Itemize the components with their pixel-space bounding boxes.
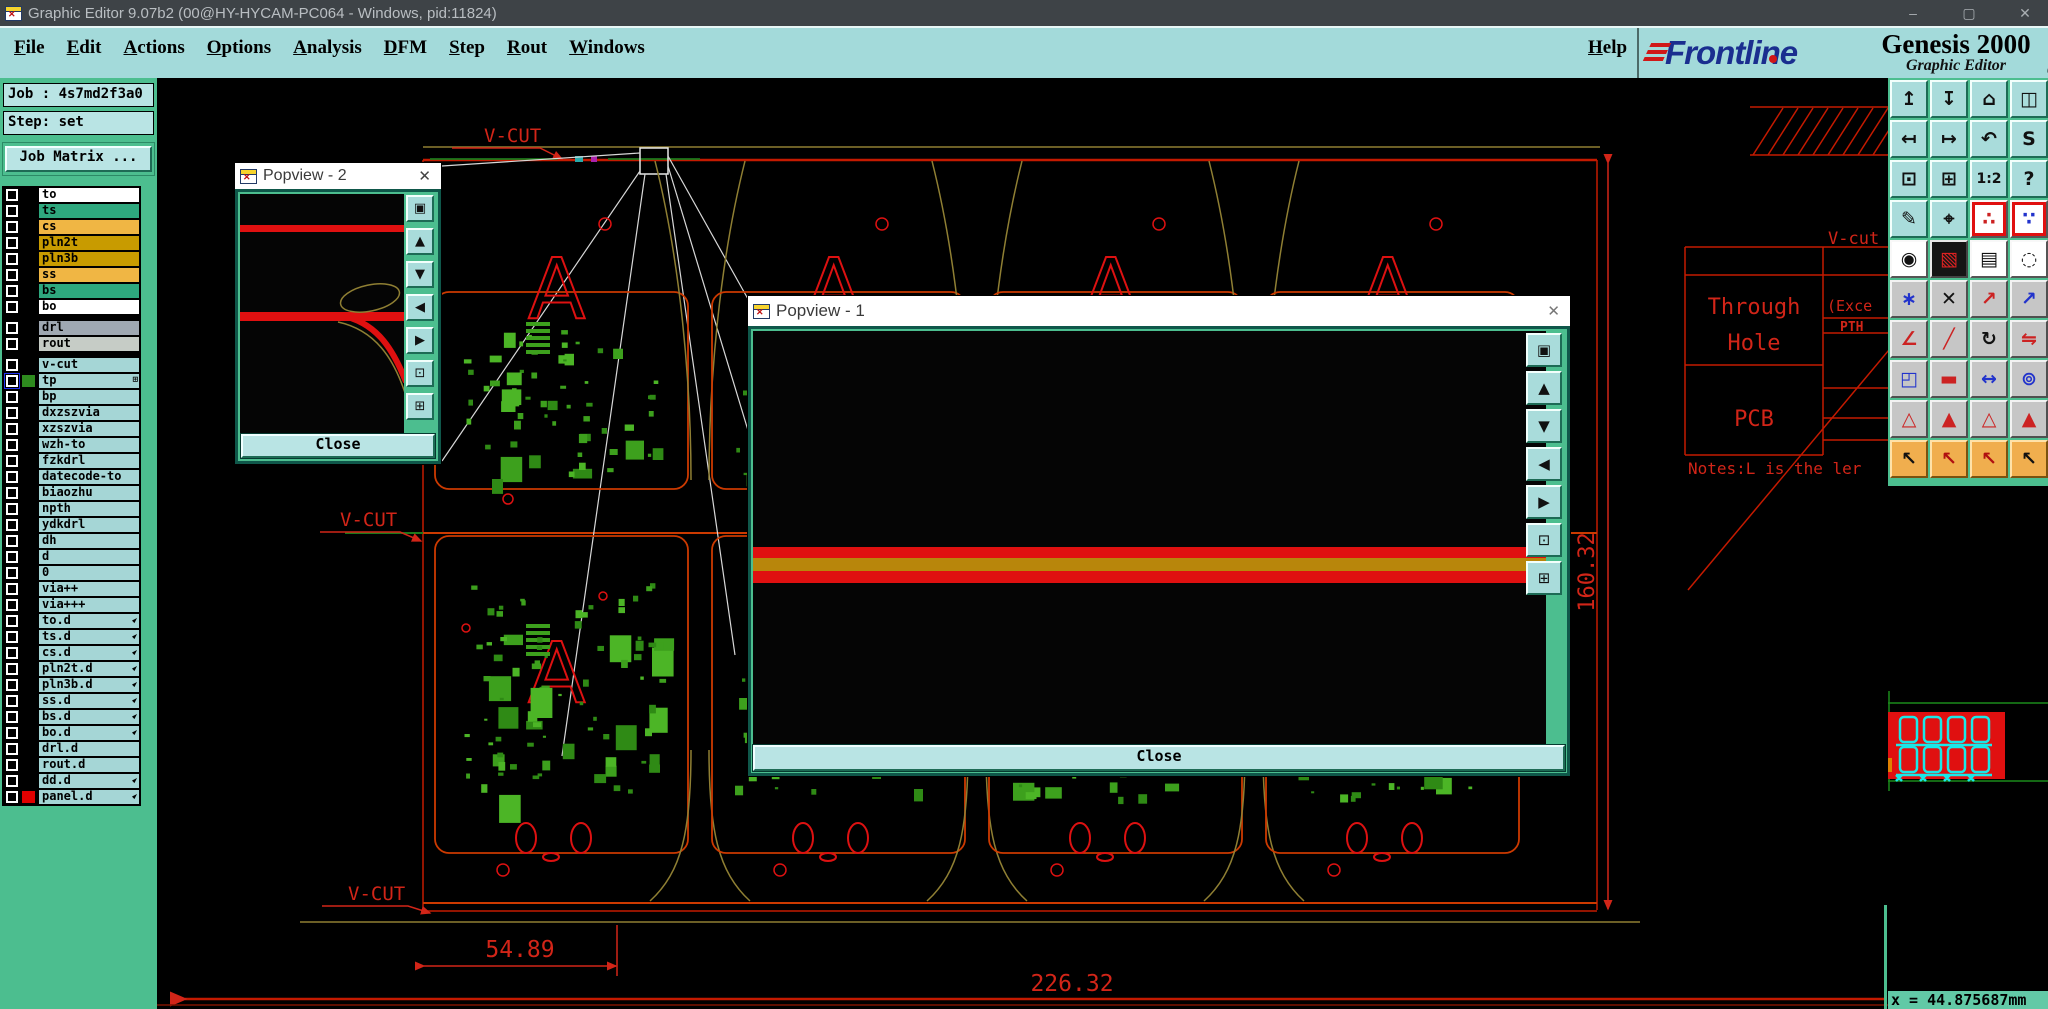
layer-label-datecode-to[interactable]: datecode-to — [38, 469, 140, 485]
rotate-object-icon: ↻ — [1981, 330, 1997, 349]
layer-color-swatch — [22, 237, 35, 249]
layer-label-d[interactable]: d — [38, 549, 140, 565]
fit-window-button[interactable]: ⊡ — [1890, 160, 1928, 198]
layer-label-pln3b.d[interactable]: pln3b.d► — [38, 677, 140, 693]
layer-label-ts.d[interactable]: ts.d► — [38, 629, 140, 645]
home-view-button[interactable]: ⌂ — [1970, 80, 2008, 118]
table-note: Notes:L is the ler — [1688, 459, 1862, 478]
layer-label-to[interactable]: to — [38, 187, 140, 203]
layer-row-bs.d[interactable]: bs.d► — [2, 709, 141, 725]
layer-visibility-checkbox[interactable] — [6, 551, 18, 563]
main-toolbar: ↥↧⌂◫↤↦↶S⊡⊞1:2?✎⌖∴∵◉▧▤◌∗✕↗↗∠╱↻⇋◰▬↔⊚△▲△▲↖↖… — [1888, 78, 2048, 486]
menu-edit[interactable]: Edit — [67, 37, 102, 59]
popview-2-fit-view-button[interactable]: ⊡ — [406, 360, 434, 387]
serpentine-view-icon: S — [2022, 130, 2036, 149]
graphic-editor-window: Graphic Editor 9.07b2 (00@HY-HYCAM-PC064… — [0, 0, 2048, 1009]
layer-label-bs[interactable]: bs — [38, 283, 140, 299]
dim-part-width: 54.89 — [485, 937, 554, 963]
previous-view-icon: ↶ — [1981, 130, 1997, 149]
layer-row-d[interactable]: d — [2, 549, 141, 565]
layer-color-swatch — [22, 615, 35, 627]
delete-object-button[interactable]: ✕ — [1930, 280, 1968, 318]
pan-up-icon: ▲ — [415, 235, 425, 248]
measure-point-2-button[interactable]: ↗ — [2010, 280, 2048, 318]
layer-visibility-checkbox[interactable] — [6, 727, 18, 739]
layer-color-swatch — [22, 727, 35, 739]
chain-select-icon: ∗ — [1901, 290, 1917, 309]
open-view-icon: ▣ — [1537, 343, 1551, 358]
layer-row-drl[interactable]: drl — [2, 320, 141, 336]
layer-visibility-checkbox[interactable] — [6, 695, 18, 707]
delete-object-icon: ✕ — [1941, 290, 1957, 309]
popview-2-canvas[interactable] — [240, 194, 404, 434]
select-net-icon: ↖ — [2021, 450, 2037, 469]
layer-color-swatch — [22, 711, 35, 723]
layer-row-biaozhu[interactable]: biaozhu — [2, 485, 141, 501]
layer-color-swatch — [22, 743, 35, 755]
layer-label-pln2t.d[interactable]: pln2t.d► — [38, 661, 140, 677]
maximize-button[interactable]: ▢ — [1958, 5, 1980, 22]
layer-label-0[interactable]: 0 — [38, 565, 140, 581]
layer-label-bp[interactable]: bp — [38, 389, 140, 405]
pan-left-icon: ◀ — [415, 301, 425, 314]
layer-visibility-checkbox[interactable] — [6, 743, 18, 755]
layer-visibility-checkbox[interactable] — [6, 519, 18, 531]
fit-view-icon: ⊡ — [1538, 533, 1551, 548]
vcut-label-top: V-CUT — [484, 125, 541, 147]
pan-left-icon: ◀ — [1538, 457, 1550, 472]
table-except: (Exce — [1827, 297, 1872, 315]
layer-label-xzszvia[interactable]: xzszvia — [38, 421, 140, 437]
popview-1-pan-right-button[interactable]: ▶ — [1526, 485, 1562, 519]
layer-label-pln3b[interactable]: pln3b — [38, 251, 140, 267]
view-zoom-out-button[interactable]: ↧ — [1930, 80, 1968, 118]
layer-row-via+++[interactable]: via+++ — [2, 597, 141, 613]
layer-label-tp[interactable]: tp⊞ — [38, 373, 140, 389]
layer-affect-icon: ► — [129, 726, 140, 739]
popview-2-pan-down-button[interactable]: ▼ — [406, 261, 434, 288]
select-circle-button[interactable]: ◌ — [2010, 240, 2048, 278]
layer-label-ydkdrl[interactable]: ydkdrl — [38, 517, 140, 533]
layer-label-panel.d[interactable]: panel.d► — [38, 789, 140, 805]
layer-visibility-checkbox[interactable] — [6, 359, 18, 371]
layer-visibility-checkbox[interactable] — [6, 407, 18, 419]
layer-color-swatch — [22, 407, 35, 419]
snap-target-icon: ⌖ — [1944, 210, 1955, 229]
popview-1-canvas[interactable] — [753, 331, 1546, 746]
layer-grid-icon: ⊞ — [133, 374, 138, 387]
popview-1-fit-view-button[interactable]: ⊡ — [1526, 523, 1562, 557]
view-zoom-out-icon: ↧ — [1941, 90, 1957, 109]
layer-row-ydkdrl[interactable]: ydkdrl — [2, 517, 141, 533]
layer-visibility-checkbox[interactable] — [6, 285, 18, 297]
popview-2-toolbar: ▣▲▼◀▶⊡⊞ — [406, 195, 436, 420]
panel-overview-minimap[interactable] — [1888, 486, 2048, 1009]
layer-color-swatch — [22, 285, 35, 297]
layer-affect-icon: ► — [129, 790, 140, 803]
layer-color-swatch — [22, 338, 35, 350]
cursor-x-readout: x = 44.875687mm — [1888, 991, 2048, 1009]
layer-label-fzkdrl[interactable]: fzkdrl — [38, 453, 140, 469]
step-name-field[interactable]: Step: set — [3, 111, 154, 135]
select-net-button[interactable]: ↖ — [2010, 440, 2048, 478]
pan-right-icon: ▶ — [415, 334, 425, 347]
layer-label-ts[interactable]: ts — [38, 203, 140, 219]
layer-row-ss[interactable]: ss — [2, 267, 141, 283]
stretch-line-icon: ▬ — [1940, 370, 1958, 389]
job-name-field[interactable]: Job : 4s7md2f3a0 — [3, 83, 154, 107]
marker-style-3-icon: △ — [1982, 410, 1997, 429]
measure-point-icon: ↗ — [1981, 290, 1997, 309]
net-highlight-a-button[interactable]: ∴ — [1970, 200, 2008, 238]
layer-label-bo.d[interactable]: bo.d► — [38, 725, 140, 741]
layer-label-dh[interactable]: dh — [38, 533, 140, 549]
stretch-line-button[interactable]: ▬ — [1930, 360, 1968, 398]
group-circles-icon: ⊚ — [2021, 370, 2037, 389]
menu-analysis[interactable]: Analysis — [293, 37, 362, 59]
popview-1-close-button[interactable]: Close — [753, 745, 1565, 771]
layer-row-dxzszvia[interactable]: dxzszvia — [2, 405, 141, 421]
marker-style-1-icon: △ — [1902, 410, 1917, 429]
chain-select-button[interactable]: ∗ — [1890, 280, 1928, 318]
layer-visibility-checkbox[interactable] — [6, 583, 18, 595]
layer-visibility-checkbox[interactable] — [6, 599, 18, 611]
scale-1-2-button[interactable]: 1:2 — [1970, 160, 2008, 198]
menu-actions[interactable]: Actions — [123, 37, 184, 59]
layer-visibility-checkbox[interactable] — [6, 253, 18, 265]
layer-label-drl[interactable]: drl — [38, 320, 140, 336]
layer-visibility-checkbox[interactable] — [6, 391, 18, 403]
layer-row-pln3b[interactable]: pln3b — [2, 251, 141, 267]
previous-view-button[interactable]: ↶ — [1970, 120, 2008, 158]
menu-dfm[interactable]: DFM — [384, 37, 427, 59]
layer-visibility-checkbox[interactable] — [6, 322, 18, 334]
layer-row-xzszvia[interactable]: xzszvia — [2, 421, 141, 437]
layer-visibility-checkbox[interactable] — [6, 375, 18, 387]
move-object-icon: ◉ — [1901, 250, 1918, 269]
home-view-icon: ⌂ — [1982, 90, 1996, 109]
layer-affect-icon: ► — [129, 694, 140, 707]
vcut-label-right: V-cut — [1828, 229, 1879, 249]
layer-row-to[interactable]: to — [2, 187, 141, 203]
select-circle-icon: ◌ — [2021, 250, 2038, 269]
pan-view-left-button[interactable]: ↤ — [1890, 120, 1928, 158]
layer-list: totscspln2tpln3bssbsbodrlroutv-cuttp⊞bpd… — [2, 186, 141, 806]
popview-1-pan-up-button[interactable]: ▲ — [1526, 371, 1562, 405]
select-single-button[interactable]: ↖ — [1890, 440, 1928, 478]
layer-row-wzh-to[interactable]: wzh-to — [2, 437, 141, 453]
popview-icon — [240, 169, 257, 184]
layer-visibility-checkbox[interactable] — [6, 301, 18, 313]
layer-visibility-checkbox[interactable] — [6, 455, 18, 467]
layer-color-swatch — [22, 663, 35, 675]
layer-visibility-checkbox[interactable] — [6, 535, 18, 547]
select-polygon-icon: ↖ — [1981, 450, 1997, 469]
query-help-button[interactable]: ? — [2010, 160, 2048, 198]
layer-color-swatch — [22, 775, 35, 787]
product-subtitle: Graphic Editor — [1865, 57, 2047, 75]
layer-label-rout[interactable]: rout — [38, 336, 140, 352]
snap-target-button[interactable]: ⌖ — [1930, 200, 1968, 238]
layer-label-cs.d[interactable]: cs.d► — [38, 645, 140, 661]
layer-row-ts[interactable]: ts — [2, 203, 141, 219]
close-button[interactable]: ✕ — [2014, 5, 2036, 22]
layer-row-ss.d[interactable]: ss.d► — [2, 693, 141, 709]
layer-color-swatch — [22, 631, 35, 643]
group-circles-button[interactable]: ⊚ — [2010, 360, 2048, 398]
measure-slope-button[interactable]: ╱ — [1930, 320, 1968, 358]
layer-visibility-checkbox[interactable] — [6, 775, 18, 787]
net-highlight-b-button[interactable]: ∵ — [2010, 200, 2048, 238]
layer-visibility-checkbox[interactable] — [6, 791, 18, 803]
marker-style-2-icon: ▲ — [1942, 410, 1957, 429]
pan-down-icon: ▼ — [415, 268, 425, 281]
layer-color-swatch — [22, 759, 35, 771]
layer-visibility-checkbox[interactable] — [6, 189, 18, 201]
popview-2-close-button[interactable]: Close — [241, 434, 435, 458]
marker-style-2-button[interactable]: ▲ — [1930, 400, 1968, 438]
popview-2-close-icon[interactable]: ✕ — [418, 167, 431, 185]
view-zoom-in-button[interactable]: ↥ — [1890, 80, 1928, 118]
net-highlight-a-icon: ∴ — [1982, 210, 1995, 229]
layer-visibility-checkbox[interactable] — [6, 647, 18, 659]
layer-visibility-checkbox[interactable] — [6, 423, 18, 435]
center-view-icon: ⊞ — [415, 400, 426, 413]
layer-row-pln2t[interactable]: pln2t — [2, 235, 141, 251]
layer-color-swatch — [22, 322, 35, 334]
layer-visibility-checkbox[interactable] — [6, 615, 18, 627]
scale-1-2-icon: 1:2 — [1976, 172, 2001, 186]
layer-label-bo[interactable]: bo — [38, 299, 140, 315]
layer-visibility-checkbox[interactable] — [6, 487, 18, 499]
measure-point-button[interactable]: ↗ — [1970, 280, 2008, 318]
dim-height: 160.32 — [1575, 532, 1600, 611]
layer-color-swatch — [22, 301, 35, 313]
copy-other-layer-button[interactable]: ◰ — [1890, 360, 1928, 398]
rotate-object-button[interactable]: ↻ — [1970, 320, 2008, 358]
app-icon — [5, 6, 22, 21]
layer-row-rout.d[interactable]: rout.d — [2, 757, 141, 773]
table-pth: PTH — [1840, 320, 1863, 335]
popview-1-center-view-button[interactable]: ⊞ — [1526, 561, 1562, 595]
pan-right-icon: ▶ — [1538, 495, 1550, 510]
window-titlebar[interactable]: Graphic Editor 9.07b2 (00@HY-HYCAM-PC064… — [0, 0, 2048, 26]
layer-color-swatch — [22, 205, 35, 217]
table-through: Through — [1708, 295, 1801, 320]
popview-2-pan-up-button[interactable]: ▲ — [406, 228, 434, 255]
layer-label-cs[interactable]: cs — [38, 219, 140, 235]
popview-2-pan-left-button[interactable]: ◀ — [406, 294, 434, 321]
layer-visibility-checkbox[interactable] — [6, 205, 18, 217]
layer-row-pln2t.d[interactable]: pln2t.d► — [2, 661, 141, 677]
layer-row-bo[interactable]: bo — [2, 299, 141, 315]
layer-row-tp[interactable]: tp⊞ — [2, 373, 141, 389]
product-name: Genesis 2000 — [1865, 31, 2047, 57]
layer-visibility-checkbox[interactable] — [6, 759, 18, 771]
layer-visibility-checkbox[interactable] — [6, 471, 18, 483]
layer-color-swatch — [22, 359, 35, 371]
ruler-measure-icon: ▤ — [1980, 250, 1998, 269]
layer-visibility-checkbox[interactable] — [6, 663, 18, 675]
marker-style-1-button[interactable]: △ — [1890, 400, 1928, 438]
select-frame-button[interactable]: ↖ — [1930, 440, 1968, 478]
layer-row-drl.d[interactable]: drl.d — [2, 741, 141, 757]
layer-label-pln2t[interactable]: pln2t — [38, 235, 140, 251]
popview-1-title: Popview - 1 — [776, 301, 865, 321]
layer-label-to.d[interactable]: to.d► — [38, 613, 140, 629]
layer-row-via++[interactable]: via++ — [2, 581, 141, 597]
center-view-icon: ⊞ — [1941, 170, 1957, 189]
layer-label-biaozhu[interactable]: biaozhu — [38, 485, 140, 501]
select-polygon-button[interactable]: ↖ — [1970, 440, 2008, 478]
layer-row-panel.d[interactable]: panel.d► — [2, 789, 141, 805]
popview-1-toolbar: ▣▲▼◀▶⊡⊞ — [1526, 333, 1564, 595]
layer-label-rout.d[interactable]: rout.d — [38, 757, 140, 773]
layer-affect-icon: ► — [129, 614, 140, 627]
layer-label-via+++[interactable]: via+++ — [38, 597, 140, 613]
layer-row-bp[interactable]: bp — [2, 389, 141, 405]
dim-total-width: 226.32 — [1030, 971, 1113, 997]
layer-color-swatch — [22, 189, 35, 201]
logo-dot-icon — [1769, 55, 1777, 63]
popview-1-close-icon[interactable]: ✕ — [1547, 302, 1560, 320]
brand-panel: Frontline Genesis 2000 Graphic Editor 06… — [1637, 28, 2048, 78]
vcut-label-mid: V-CUT — [340, 509, 397, 531]
layer-label-v-cut[interactable]: v-cut — [38, 357, 140, 373]
menu-bar: FileEditActionsOptionsAnalysisDFMStepRou… — [0, 26, 2048, 78]
pan-down-icon: ▼ — [1538, 419, 1550, 434]
pan-view-left-icon: ↤ — [1901, 130, 1917, 149]
menu-file[interactable]: File — [14, 37, 45, 59]
layer-row-pln3b.d[interactable]: pln3b.d► — [2, 677, 141, 693]
popview-2-titlebar[interactable]: Popview - 2 ✕ — [235, 163, 441, 189]
popview-1-titlebar[interactable]: Popview - 1 ✕ — [748, 296, 1570, 326]
layer-row-fzkdrl[interactable]: fzkdrl — [2, 453, 141, 469]
measure-distance-icon: ↔ — [1981, 370, 1997, 389]
layer-row-to.d[interactable]: to.d► — [2, 613, 141, 629]
layer-label-drl.d[interactable]: drl.d — [38, 741, 140, 757]
popview-2-title: Popview - 2 — [263, 167, 347, 185]
select-single-icon: ↖ — [1901, 450, 1917, 469]
layer-row-cs.d[interactable]: cs.d► — [2, 645, 141, 661]
measure-angle-icon: ∠ — [1900, 330, 1917, 349]
job-matrix-button[interactable]: Job Matrix ... — [5, 146, 152, 172]
popview-2-center-view-button[interactable]: ⊞ — [406, 393, 434, 420]
layer-row-rout[interactable]: rout — [2, 336, 141, 352]
layer-label-ss.d[interactable]: ss.d► — [38, 693, 140, 709]
layer-row-ts.d[interactable]: ts.d► — [2, 629, 141, 645]
marker-style-4-button[interactable]: ▲ — [2010, 400, 2048, 438]
serpentine-view-button[interactable]: S — [2010, 120, 2048, 158]
layer-label-via++[interactable]: via++ — [38, 581, 140, 597]
layer-label-ss[interactable]: ss — [38, 267, 140, 283]
layer-visibility-checkbox[interactable] — [6, 221, 18, 233]
layer-row-bo.d[interactable]: bo.d► — [2, 725, 141, 741]
layer-color-swatch — [22, 471, 35, 483]
layer-row-datecode-to[interactable]: datecode-to — [2, 469, 141, 485]
popview-2-window: Popview - 2 ✕ ▣▲▼◀▶⊡⊞ Close — [235, 163, 441, 464]
measure-angle-button[interactable]: ∠ — [1890, 320, 1928, 358]
move-object-button[interactable]: ◉ — [1890, 240, 1928, 278]
layer-color-swatch — [22, 695, 35, 707]
measure-distance-button[interactable]: ↔ — [1970, 360, 2008, 398]
fit-window-icon: ⊡ — [1901, 170, 1917, 189]
layer-visibility-checkbox[interactable] — [6, 711, 18, 723]
layer-color-swatch — [22, 423, 35, 435]
pan-up-icon: ▲ — [1538, 381, 1550, 396]
edit-tools-icon: ✎ — [1901, 210, 1917, 229]
layer-label-dd.d[interactable]: dd.d► — [38, 773, 140, 789]
layer-label-dxzszvia[interactable]: dxzszvia — [38, 405, 140, 421]
menu-help[interactable]: Help — [1588, 37, 1627, 59]
layer-row-cs[interactable]: cs — [2, 219, 141, 235]
menu-rout[interactable]: Rout — [507, 37, 547, 59]
split-window-xy-button[interactable]: ◫ — [2010, 80, 2048, 118]
layer-color-swatch — [22, 535, 35, 547]
shape-edit-button[interactable]: ▧ — [1930, 240, 1968, 278]
layer-label-wzh-to[interactable]: wzh-to — [38, 437, 140, 453]
menu-options[interactable]: Options — [207, 37, 271, 59]
minimize-button[interactable]: – — [1902, 5, 1924, 21]
center-view-button[interactable]: ⊞ — [1930, 160, 1968, 198]
layer-label-bs.d[interactable]: bs.d► — [38, 709, 140, 725]
layer-row-dh[interactable]: dh — [2, 533, 141, 549]
layer-visibility-checkbox[interactable] — [6, 237, 18, 249]
center-view-icon: ⊞ — [1538, 571, 1551, 586]
layer-visibility-checkbox[interactable] — [6, 439, 18, 451]
popview-1-open-view-button[interactable]: ▣ — [1526, 333, 1562, 367]
frontline-logo: Frontline — [1647, 34, 1865, 72]
layer-affect-icon: ► — [129, 662, 140, 675]
popview-1-pan-down-button[interactable]: ▼ — [1526, 409, 1562, 443]
layer-row-dd.d[interactable]: dd.d► — [2, 773, 141, 789]
layer-visibility-checkbox[interactable] — [6, 631, 18, 643]
layer-row-v-cut[interactable]: v-cut — [2, 357, 141, 373]
popview-1-pan-left-button[interactable]: ◀ — [1526, 447, 1562, 481]
right-toolbar-column: ↥↧⌂◫↤↦↶S⊡⊞1:2?✎⌖∴∵◉▧▤◌∗✕↗↗∠╱↻⇋◰▬↔⊚△▲△▲↖↖… — [1888, 78, 2048, 1009]
popview-2-open-view-button[interactable]: ▣ — [406, 195, 434, 222]
layer-visibility-checkbox[interactable] — [6, 269, 18, 281]
marker-style-4-icon: ▲ — [2022, 410, 2037, 429]
layer-affect-icon: ► — [129, 646, 140, 659]
layer-visibility-checkbox[interactable] — [6, 338, 18, 350]
edit-tools-button[interactable]: ✎ — [1890, 200, 1928, 238]
fit-view-icon: ⊡ — [415, 367, 426, 380]
layer-visibility-checkbox[interactable] — [6, 679, 18, 691]
layer-label-npth[interactable]: npth — [38, 501, 140, 517]
menu-step[interactable]: Step — [449, 37, 485, 59]
window-title: Graphic Editor 9.07b2 (00@HY-HYCAM-PC064… — [28, 5, 497, 22]
layer-color-swatch — [22, 647, 35, 659]
net-highlight-b-icon: ∵ — [2022, 210, 2035, 229]
layer-color-swatch — [22, 519, 35, 531]
table-pcb: PCB — [1734, 407, 1774, 432]
layer-sidebar: Job : 4s7md2f3a0 Step: set Job Matrix ..… — [0, 78, 157, 1009]
layer-row-bs[interactable]: bs — [2, 283, 141, 299]
ruler-measure-button[interactable]: ▤ — [1970, 240, 2008, 278]
layer-color-swatch — [22, 679, 35, 691]
layer-visibility-checkbox[interactable] — [6, 503, 18, 515]
popview-2-pan-right-button[interactable]: ▶ — [406, 327, 434, 354]
mirror-object-button[interactable]: ⇋ — [2010, 320, 2048, 358]
menu-windows[interactable]: Windows — [569, 37, 645, 59]
marker-style-3-button[interactable]: △ — [1970, 400, 2008, 438]
pan-view-right-button[interactable]: ↦ — [1930, 120, 1968, 158]
layer-color-swatch — [22, 269, 35, 281]
layer-row-0[interactable]: 0 — [2, 565, 141, 581]
layer-visibility-checkbox[interactable] — [6, 567, 18, 579]
layer-row-npth[interactable]: npth — [2, 501, 141, 517]
